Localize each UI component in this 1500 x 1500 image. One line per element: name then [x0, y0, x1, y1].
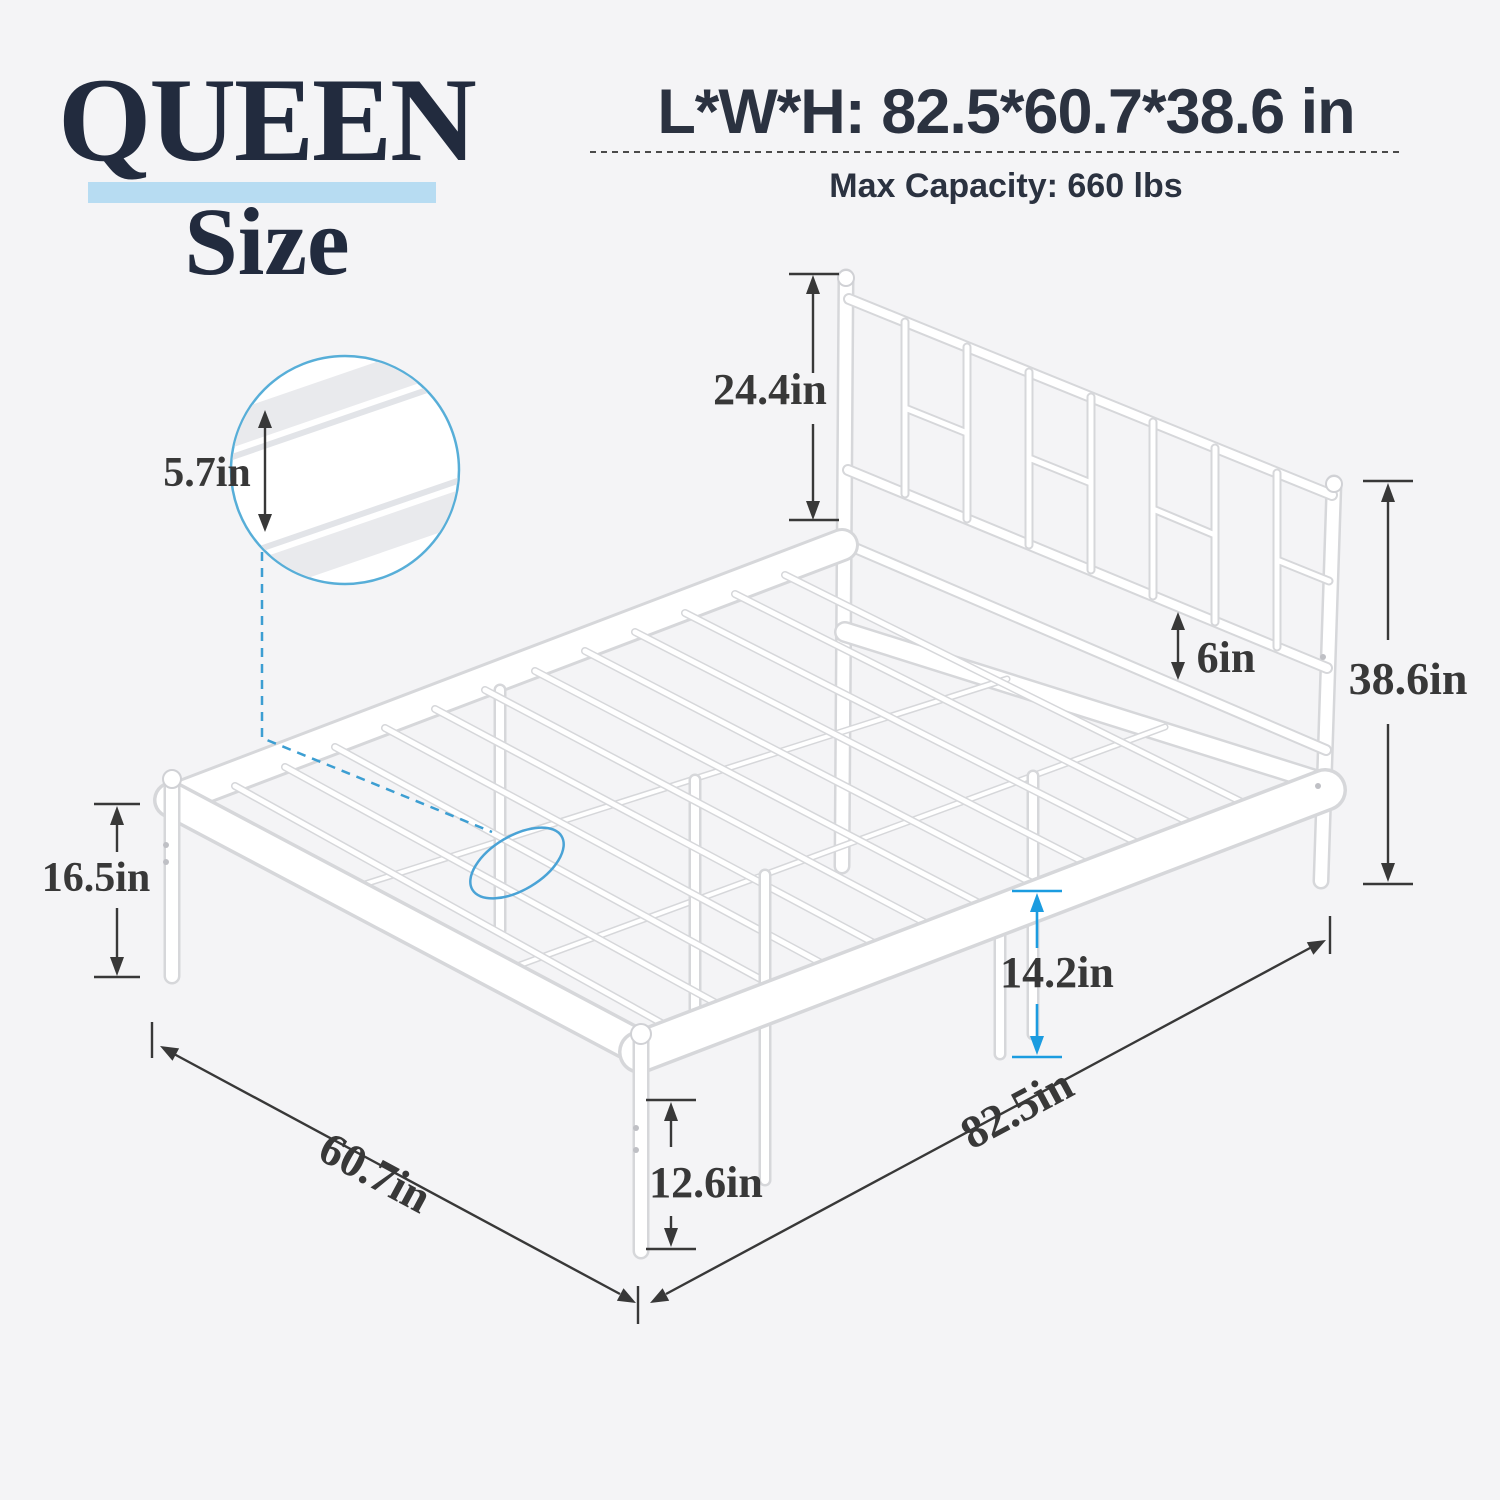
screw-icon: [633, 1125, 639, 1131]
screw-icon: [1315, 783, 1321, 789]
screw-icon: [163, 842, 169, 848]
bed-dimension-diagram: QUEEN Size L*W*H: 82.5*60.7*38.6 in Max …: [0, 0, 1500, 1500]
queen-label: QUEEN: [58, 53, 476, 186]
screw-icon: [163, 859, 169, 865]
dim-platform-height: 16.5in: [42, 855, 151, 901]
headboard-right-post-cap: [1326, 476, 1342, 492]
dim-overall-height: 38.6in: [1349, 653, 1468, 704]
size-label: Size: [184, 188, 349, 295]
foot-corner-cap: [163, 770, 181, 788]
dim-center-clearance: 14.2in: [1000, 948, 1114, 997]
front-corner-joint: [631, 1024, 651, 1044]
dimensions-title: L*W*H: 82.5*60.7*38.6 in: [657, 77, 1354, 147]
dim-headboard-height: 24.4in: [713, 365, 827, 414]
screw-icon: [1320, 654, 1326, 660]
dim-corner-clearance: 12.6in: [649, 1158, 763, 1207]
dim-headboard-gap: 6in: [1197, 633, 1256, 682]
max-capacity-label: Max Capacity: 660 lbs: [829, 167, 1182, 205]
screw-icon: [633, 1147, 639, 1153]
headboard-left-post-cap: [838, 270, 854, 286]
dim-side-rail-height: 5.7in: [163, 450, 251, 496]
